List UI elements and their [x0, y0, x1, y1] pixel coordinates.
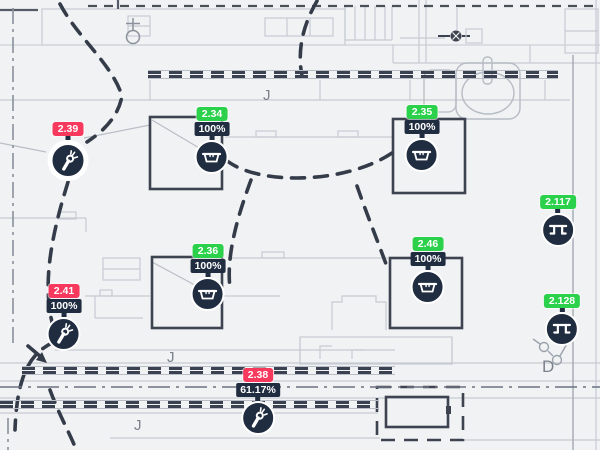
route-paths: [15, 1, 392, 449]
sensor-id-badge[interactable]: 2.46: [413, 237, 443, 251]
sensor-marker-2-34[interactable]: 2.34 100%: [195, 107, 230, 174]
sensor-marker-2-41[interactable]: 2.41 100%: [47, 284, 82, 351]
floor-plan-drawing: J J J D: [0, 0, 600, 450]
centerline-vertical: [8, 8, 13, 450]
route-path: [229, 180, 251, 288]
sensor-marker-2-117[interactable]: 2.117: [540, 195, 576, 247]
sensor-id-badge[interactable]: 2.41: [49, 284, 79, 298]
sensor-marker-2-36[interactable]: 2.36 100%: [191, 244, 226, 311]
route-path: [226, 153, 392, 178]
room-label: J: [263, 87, 271, 104]
dispenser-icon[interactable]: [195, 140, 229, 174]
route-path: [357, 186, 389, 272]
dispenser-icon[interactable]: [411, 270, 445, 304]
route-path: [300, 1, 317, 76]
equipment-rect: [386, 397, 448, 427]
sensor-id-badge[interactable]: 2.34: [197, 107, 227, 121]
sensor-marker-2-38[interactable]: 2.38 61.17%: [236, 368, 280, 435]
tap-icon[interactable]: [47, 317, 81, 351]
hatched-wall-bottom-1: [22, 366, 395, 375]
tap-icon[interactable]: [48, 140, 89, 181]
sensor-id-badge[interactable]: 2.39: [53, 122, 83, 136]
sensor-id-badge[interactable]: 2.128: [544, 294, 580, 308]
sensor-percent-badge: 61.17%: [236, 383, 280, 397]
stall-icon[interactable]: [545, 312, 579, 346]
sensor-marker-2-35[interactable]: 2.35 100%: [405, 105, 440, 172]
sensor-id-badge[interactable]: 2.38: [243, 368, 273, 382]
equipment-nub: [446, 406, 451, 414]
sensor-percent-badge: 100%: [405, 120, 440, 134]
sensor-marker-2-39[interactable]: 2.39: [48, 122, 89, 181]
centerline-horizontal: [0, 386, 600, 388]
sensor-percent-badge: 100%: [195, 122, 230, 136]
hatched-wall-bottom-2: [0, 400, 378, 409]
sensor-id-badge[interactable]: 2.117: [540, 195, 576, 209]
route-path: [50, 390, 76, 449]
hatched-wall-top: [148, 70, 558, 79]
stall-icon[interactable]: [541, 213, 575, 247]
sink-fixture: [456, 57, 520, 119]
sensor-marker-2-46[interactable]: 2.46 100%: [411, 237, 446, 304]
tap-icon[interactable]: [241, 401, 275, 435]
room-label: J: [134, 417, 142, 434]
floor-plan-view: J J J D 2.39 2.34 100%: [0, 0, 600, 450]
sensor-id-badge[interactable]: 2.36: [193, 244, 223, 258]
room-label: D: [542, 357, 554, 376]
sensor-percent-badge: 100%: [191, 259, 226, 273]
sensor-id-badge[interactable]: 2.35: [407, 105, 437, 119]
equipment-block: [377, 387, 463, 440]
dispenser-icon[interactable]: [405, 138, 439, 172]
sensor-marker-2-128[interactable]: 2.128: [544, 294, 580, 346]
room-label: J: [167, 349, 175, 366]
sensor-percent-badge: 100%: [411, 252, 446, 266]
sensor-percent-badge: 100%: [47, 299, 82, 313]
dispenser-icon[interactable]: [191, 277, 225, 311]
